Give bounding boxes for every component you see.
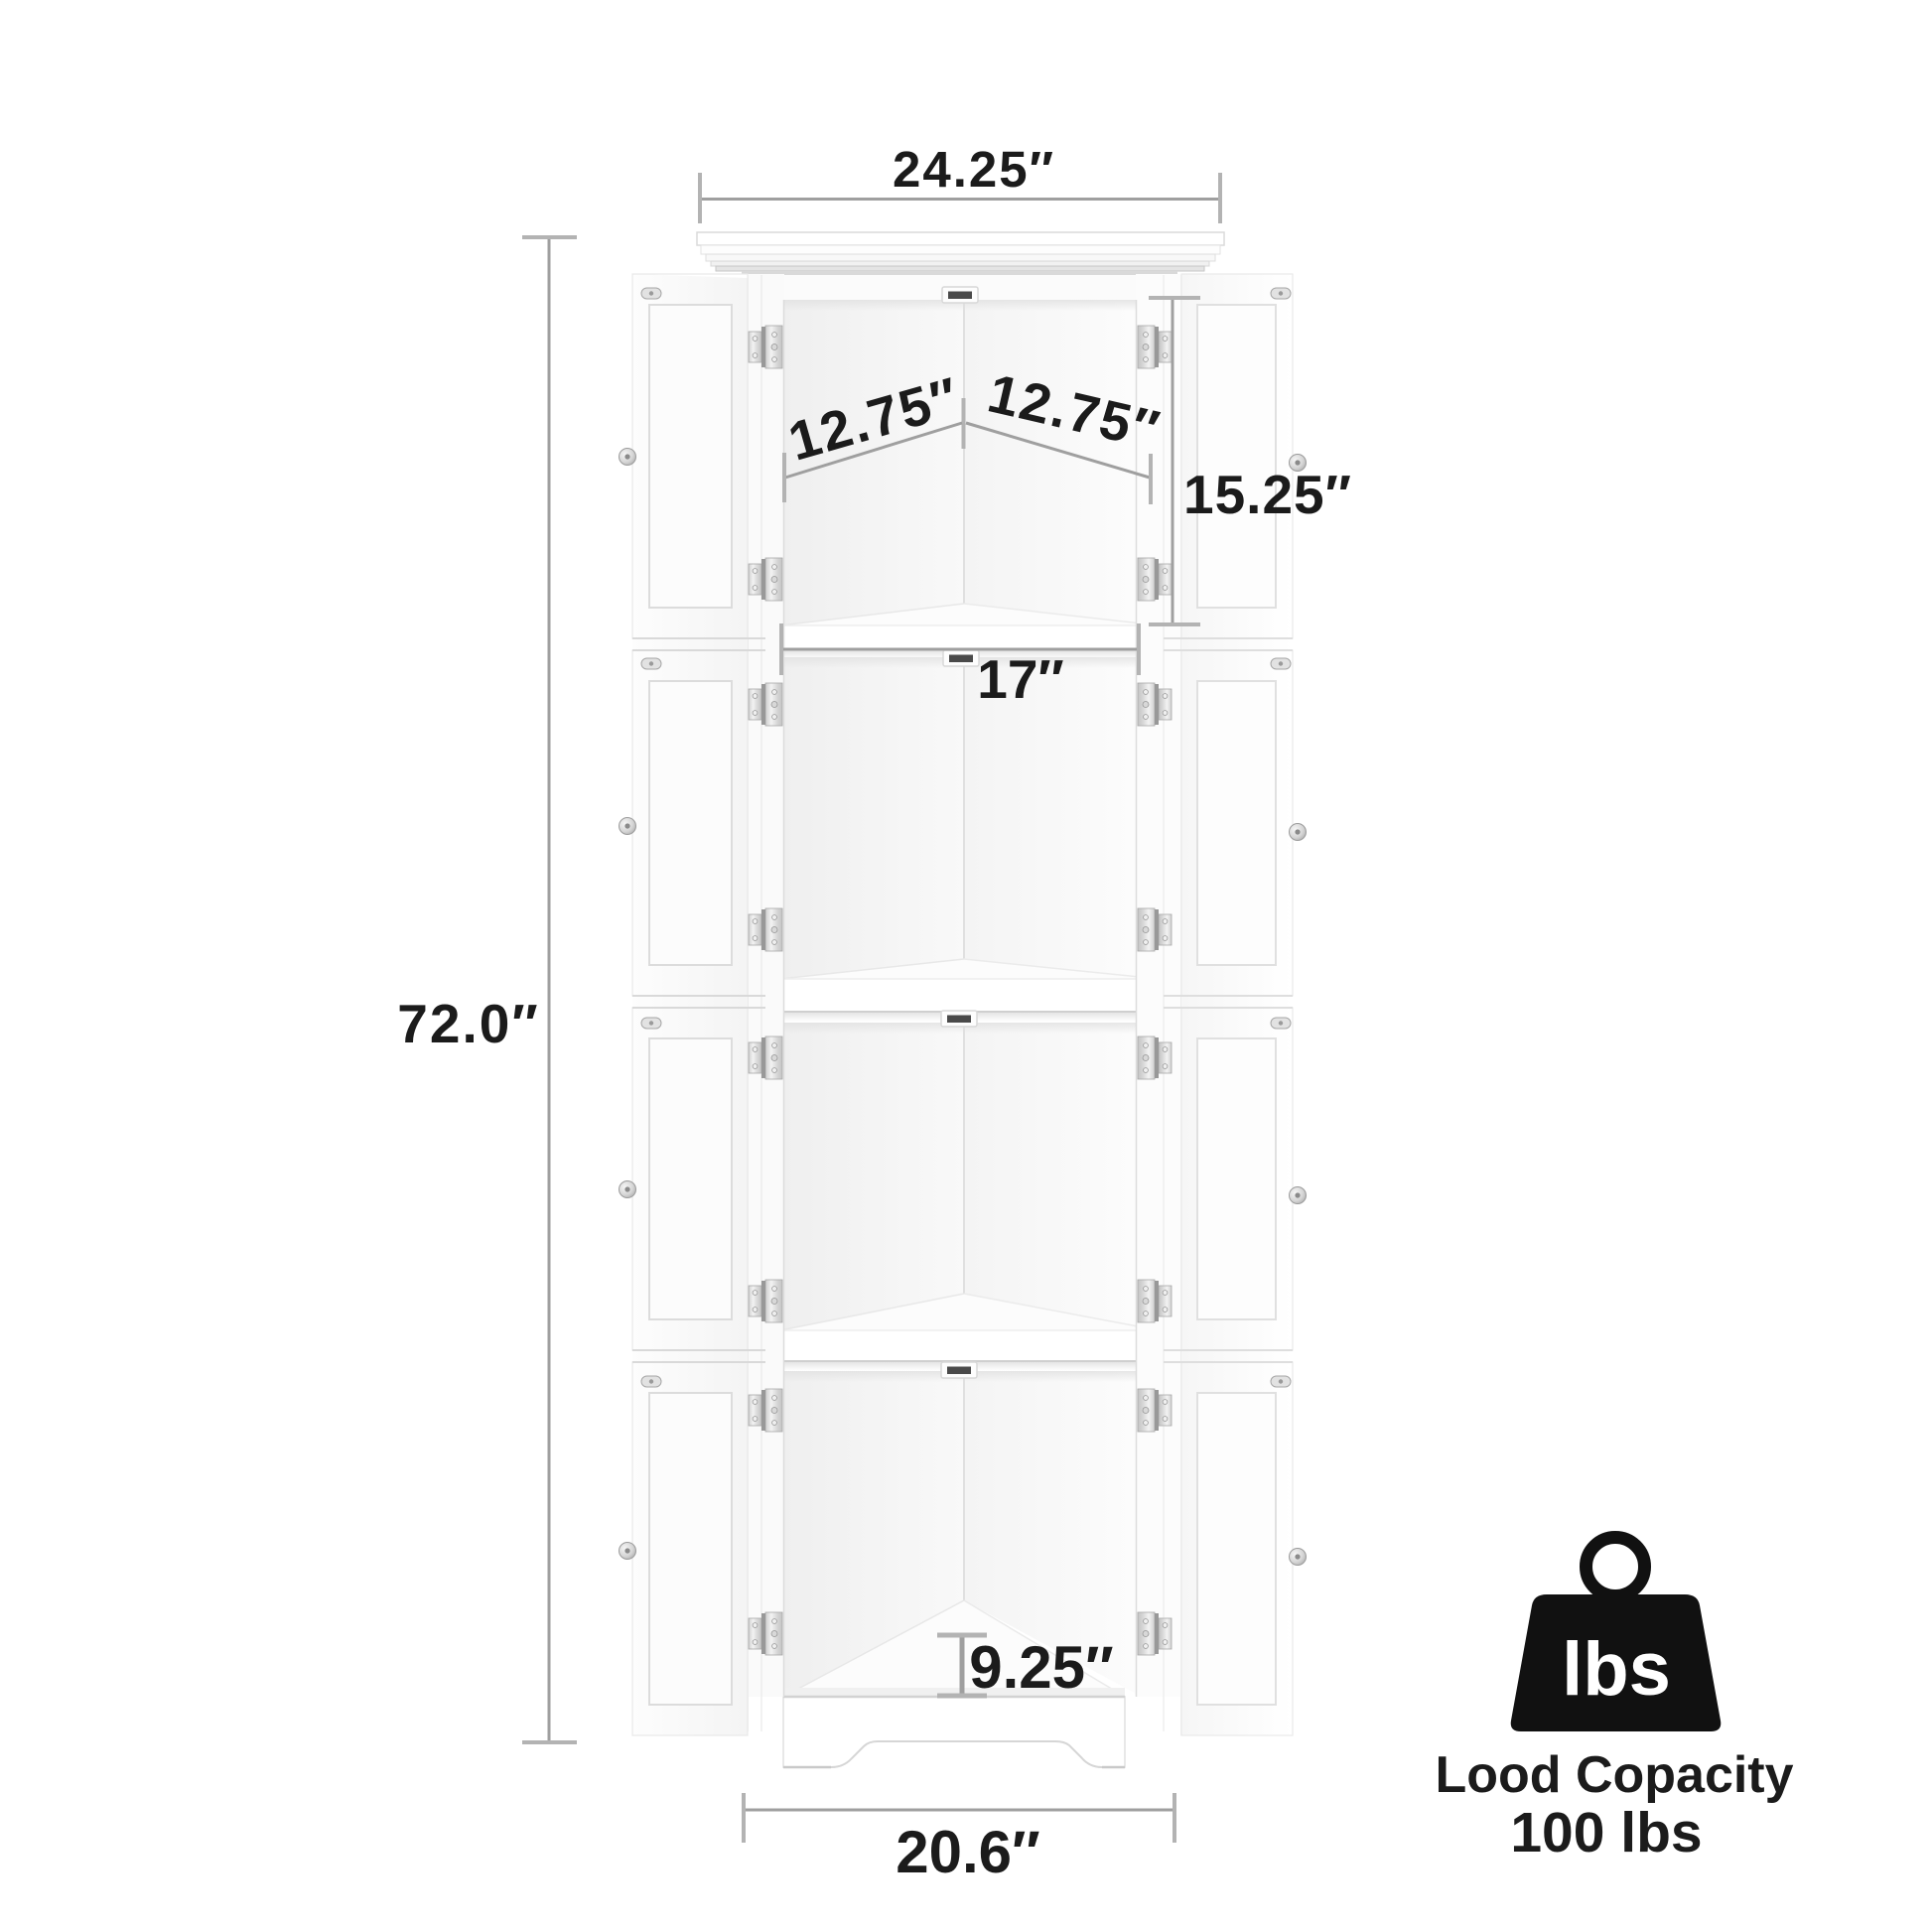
svg-text:lbs: lbs xyxy=(1562,1627,1671,1712)
svg-text:72.0″: 72.0″ xyxy=(397,993,539,1054)
svg-text:100 lbs: 100 lbs xyxy=(1510,1801,1702,1864)
svg-text:15.25″: 15.25″ xyxy=(1183,464,1352,525)
svg-text:9.25″: 9.25″ xyxy=(969,1634,1114,1701)
svg-text:17″: 17″ xyxy=(977,648,1064,710)
svg-text:24.25″: 24.25″ xyxy=(893,141,1055,198)
svg-text:20.6″: 20.6″ xyxy=(896,1819,1040,1885)
svg-text:Lood Copacity: Lood Copacity xyxy=(1435,1746,1793,1804)
